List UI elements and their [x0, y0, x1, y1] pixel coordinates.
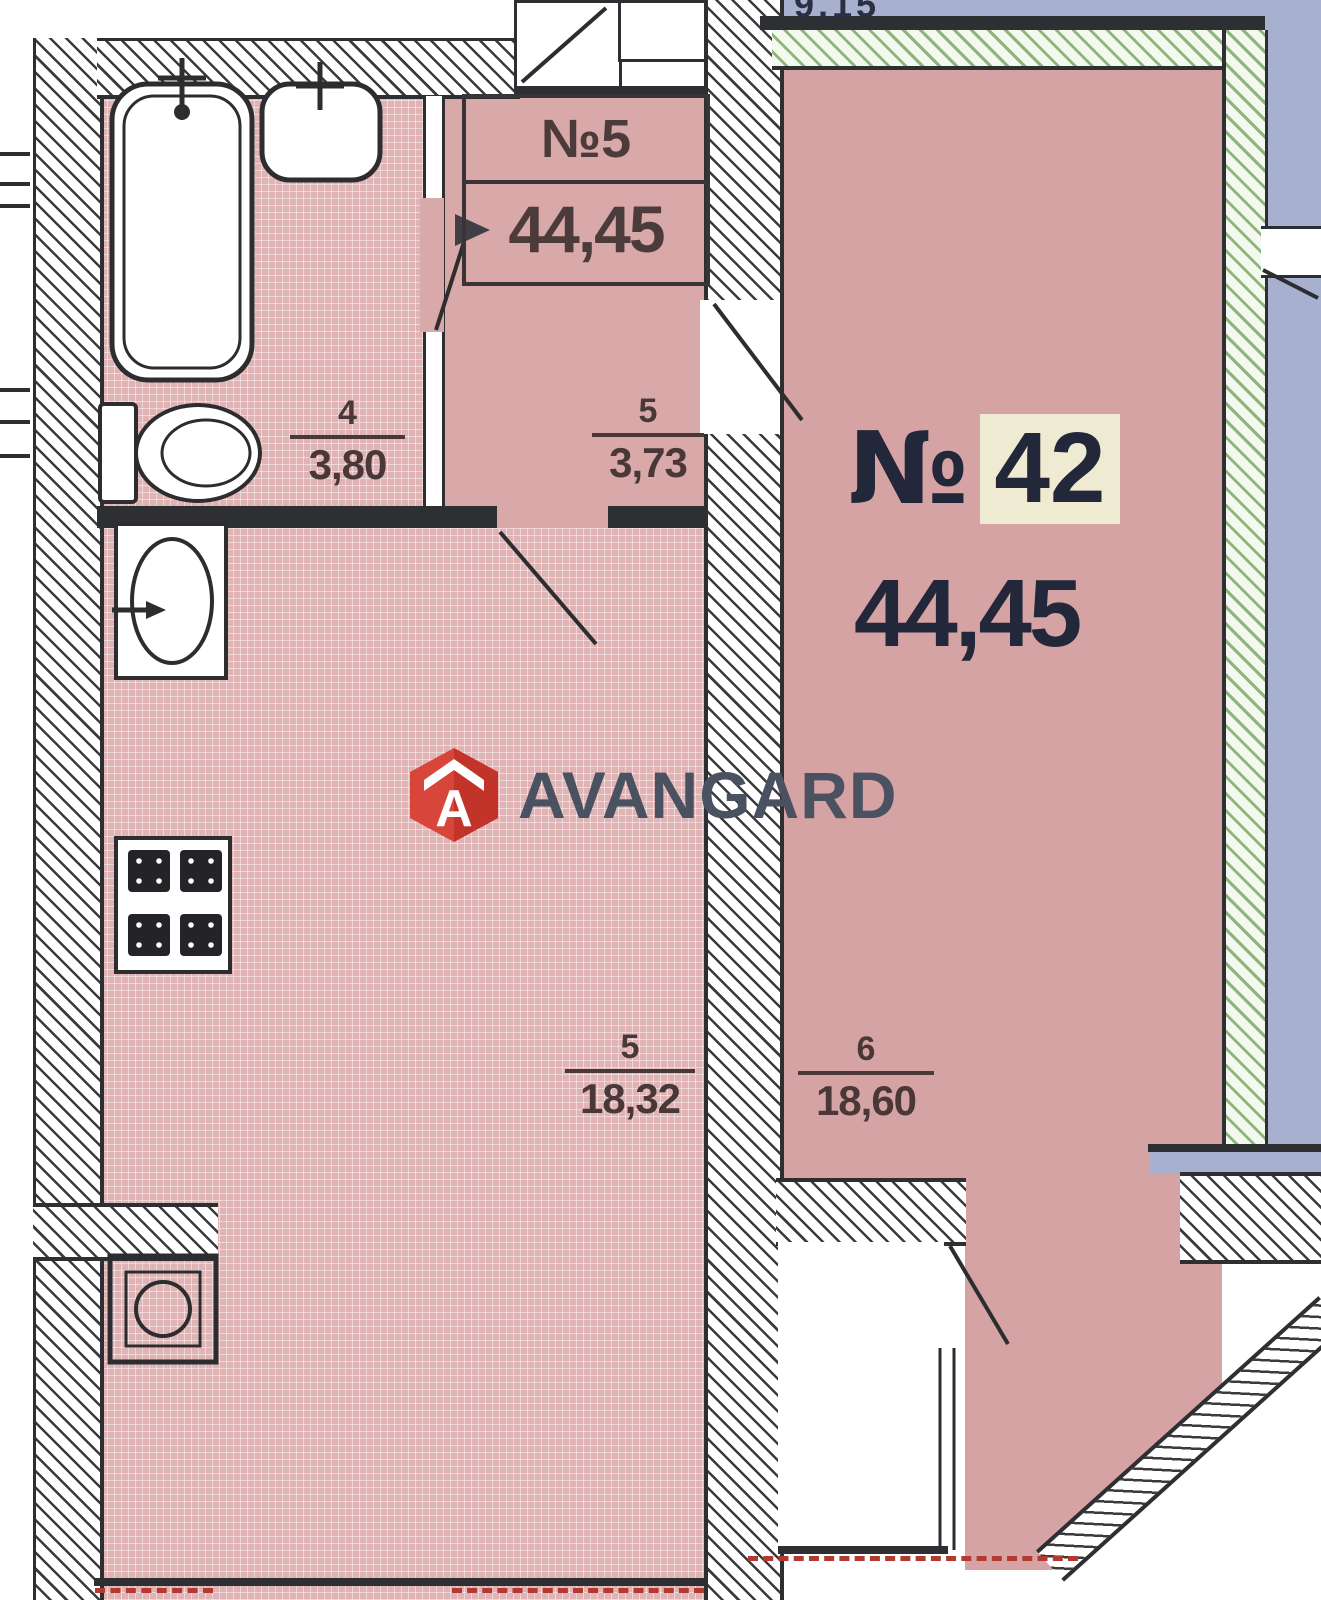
apartment-box-number: №5 — [466, 98, 706, 184]
room-label-hall: 5 3,73 — [592, 394, 704, 484]
avangard-logo-icon: A — [408, 746, 500, 844]
bathtub-icon — [112, 84, 252, 380]
apartment-box-area: 44,45 — [466, 184, 706, 274]
shaft-diagonal — [522, 8, 606, 82]
room-label-bathroom: 4 3,80 — [290, 396, 405, 486]
partial-dimension: 9,15 — [794, 0, 880, 26]
watermark: A AVANGARD — [408, 746, 898, 844]
floor-plan: №5 44,45 4 3,80 5 3,73 5 18,32 6 18,60 №… — [0, 0, 1321, 1600]
apartment-label-box: №5 44,45 — [462, 94, 710, 286]
room-label-kitchen: 5 18,32 — [565, 1030, 695, 1120]
apartment-number: 42 — [980, 414, 1119, 524]
door-leaf-balcony — [950, 1246, 1008, 1344]
door-leaf-bathroom — [436, 242, 464, 330]
door-leaf-entrance — [714, 304, 802, 420]
apartment-area: 44,45 — [854, 566, 1079, 662]
brand-text: AVANGARD — [518, 762, 898, 828]
bracket-diagonal — [1263, 270, 1318, 298]
room-label-room: 6 18,60 — [798, 1032, 934, 1122]
door-leaf-kitchen — [500, 532, 596, 644]
number-sign: № — [848, 419, 968, 519]
logo-letter: A — [435, 780, 473, 838]
apartment-callout: № 42 — [848, 414, 1120, 524]
